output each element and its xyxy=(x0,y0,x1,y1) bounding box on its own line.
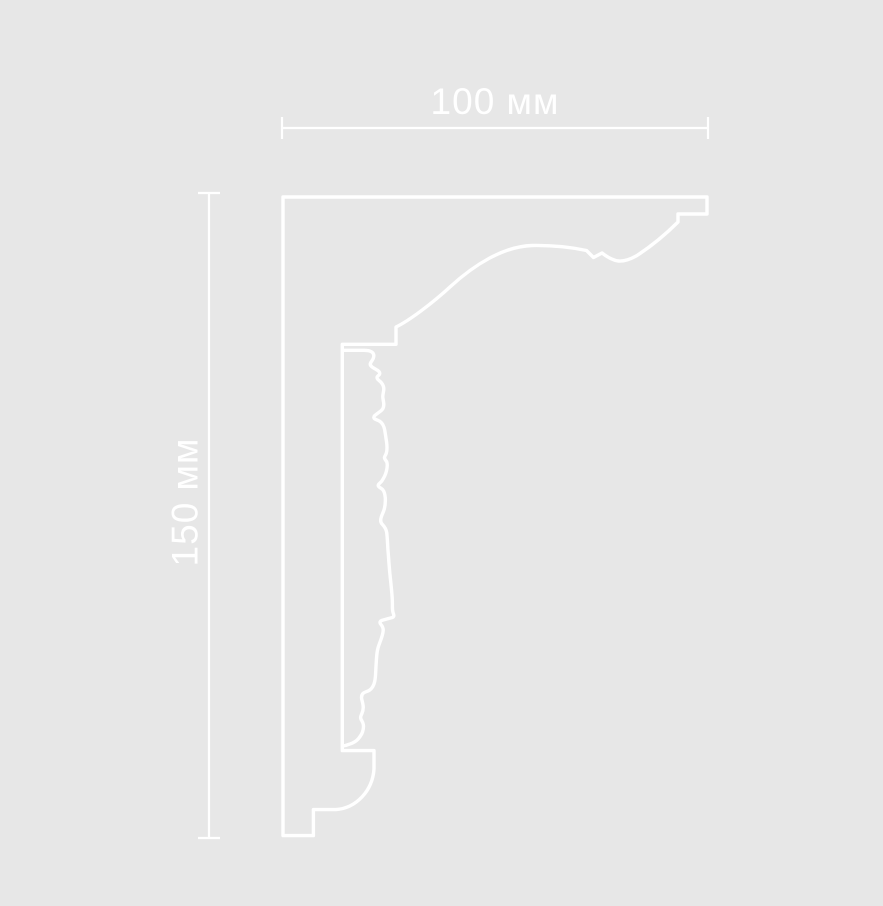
height-dimension: 150 мм xyxy=(165,193,221,838)
profile-outline xyxy=(283,197,707,836)
height-dimension-label: 150 мм xyxy=(165,438,206,567)
profile-ornament-detail xyxy=(344,350,394,746)
stage: 100 мм 150 мм xyxy=(0,0,883,906)
molding-profile-drawing: 100 мм 150 мм xyxy=(0,0,883,906)
width-dimension-label: 100 мм xyxy=(431,81,560,122)
width-dimension: 100 мм xyxy=(282,81,708,139)
